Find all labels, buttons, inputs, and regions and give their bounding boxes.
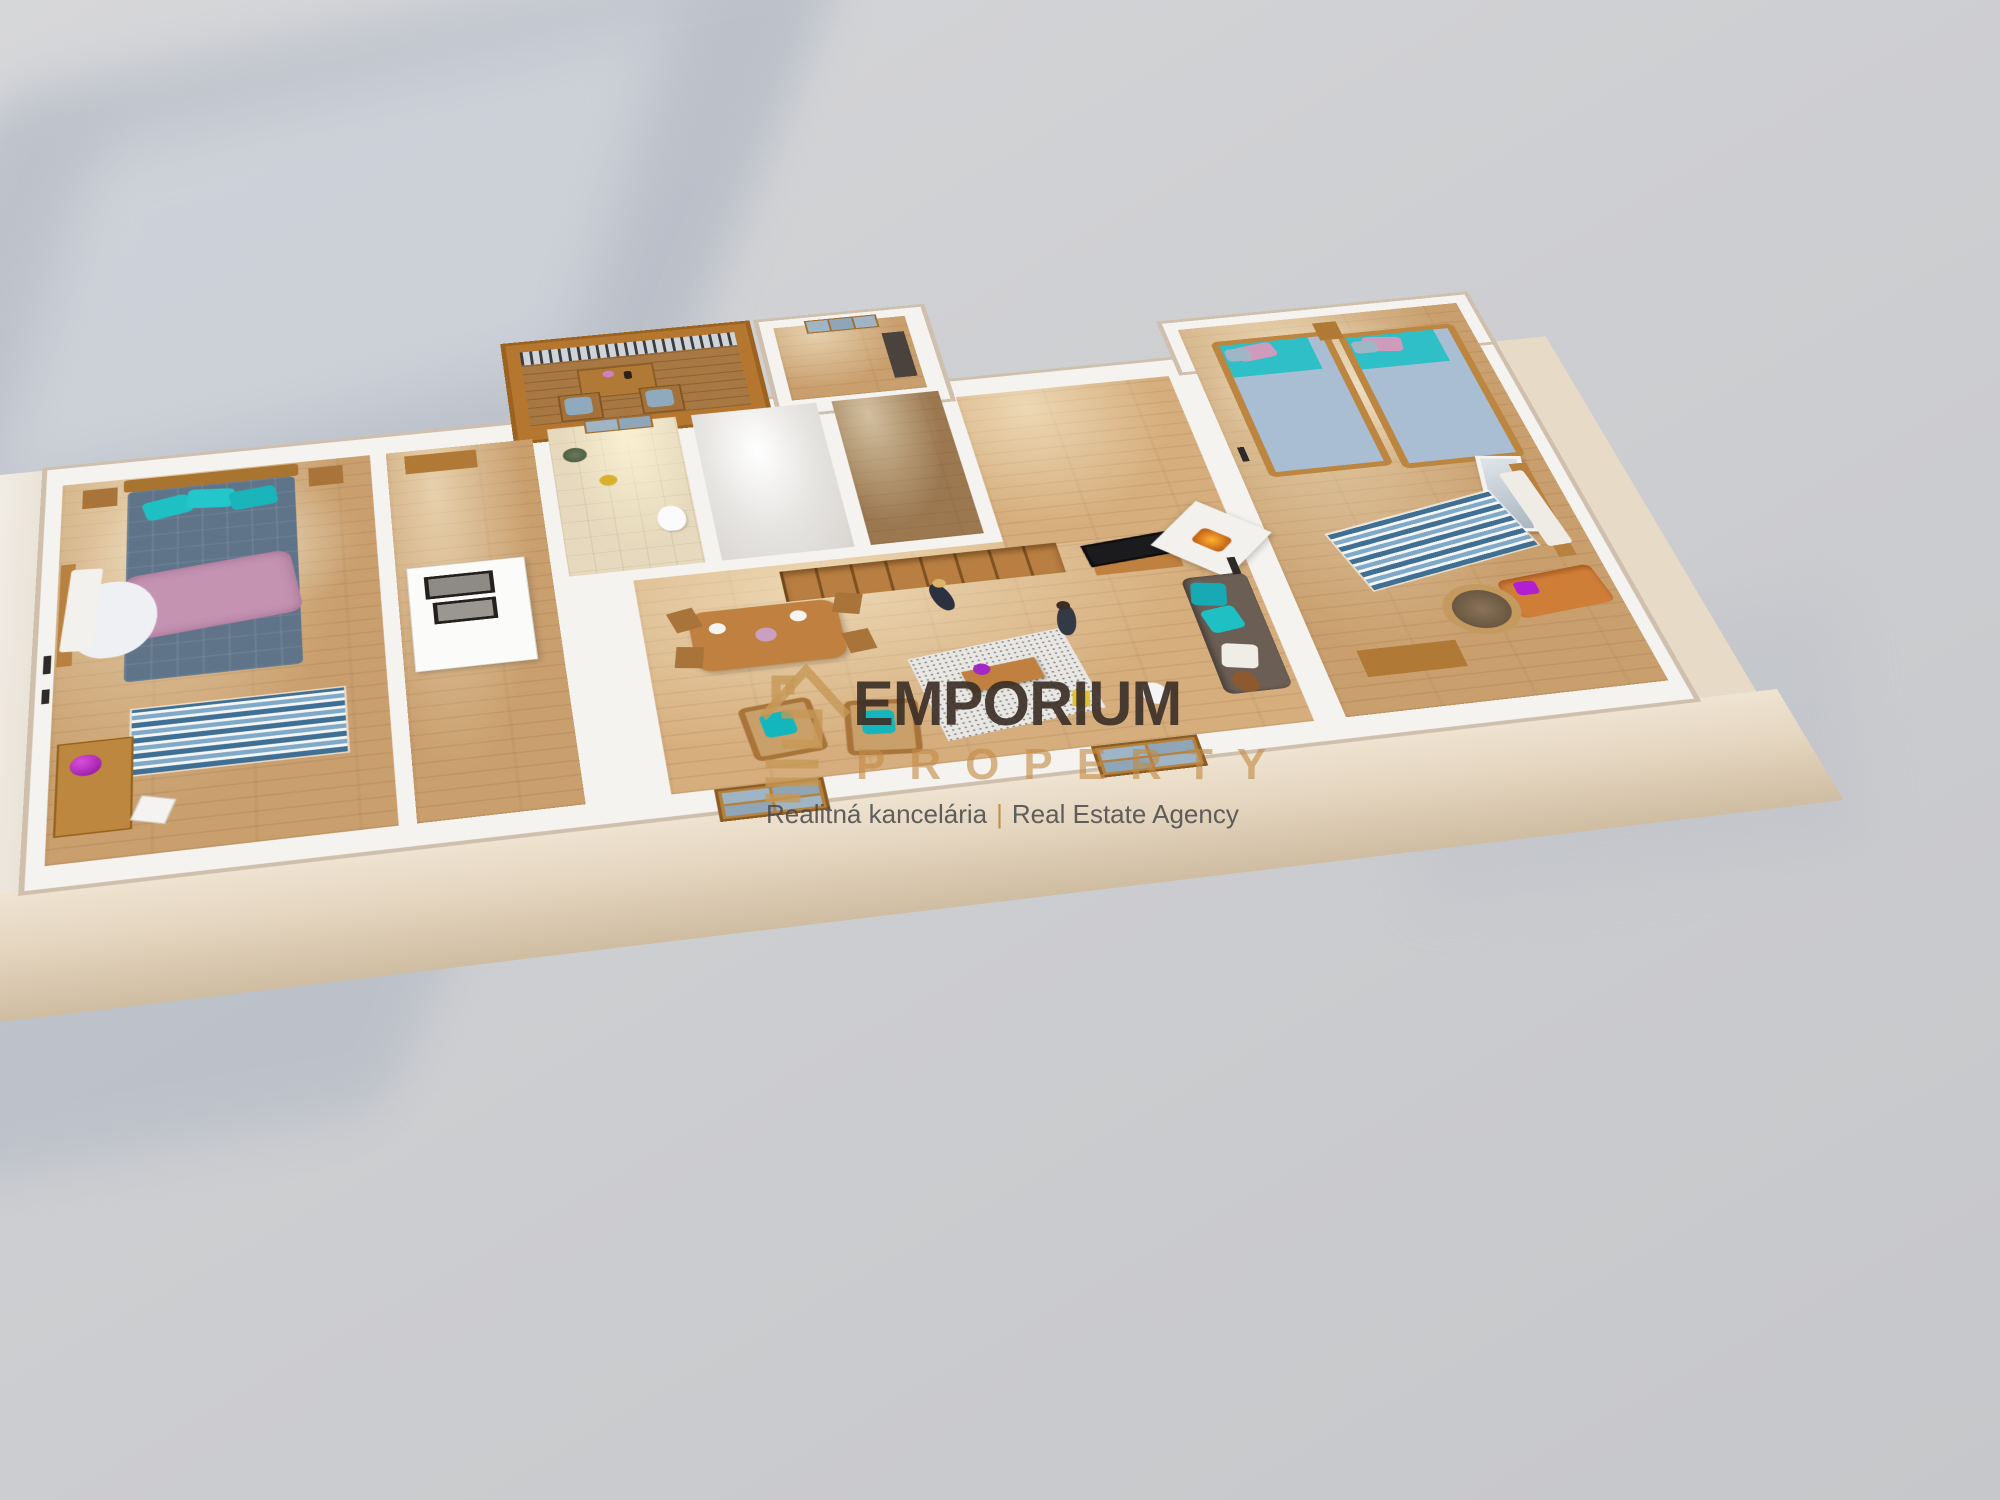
dining-chair (675, 647, 705, 668)
teal-pillow (186, 488, 236, 508)
floral-cushion (1221, 643, 1258, 669)
nightstand (82, 487, 117, 509)
tagline-right: Real Estate Agency (1012, 799, 1239, 829)
window-pane (806, 320, 831, 333)
window-pane (829, 318, 854, 331)
blue-pillow (1223, 348, 1252, 362)
watermark-tagline: Realitná kancelária|Real Estate Agency (766, 799, 1239, 830)
wall-frame (43, 656, 52, 675)
watermark-brand-sub: PROPERTY (856, 740, 1290, 790)
dresser (53, 736, 134, 838)
tagline-separator: | (987, 799, 1012, 829)
wall-frame (41, 689, 50, 704)
nightstand (308, 465, 343, 486)
deck-chair-cushion (564, 396, 594, 416)
apartment-building (24, 257, 1694, 891)
window-pane (585, 419, 618, 432)
emporium-house-logo (756, 652, 852, 804)
logo-body (786, 714, 818, 744)
wine-bottle (623, 371, 632, 379)
window-pane (853, 315, 878, 328)
window-pane (618, 416, 651, 429)
watermark-brand: EMPORIUM (853, 668, 1181, 740)
dining-chair (832, 592, 863, 614)
floorplan-render: EMPORIUM PROPERTY Realitná kancelária|Re… (0, 0, 2000, 1500)
tagline-left: Realitná kancelária (766, 799, 987, 829)
deck-chair-cushion (645, 388, 675, 408)
teal-cushion (1190, 582, 1227, 606)
